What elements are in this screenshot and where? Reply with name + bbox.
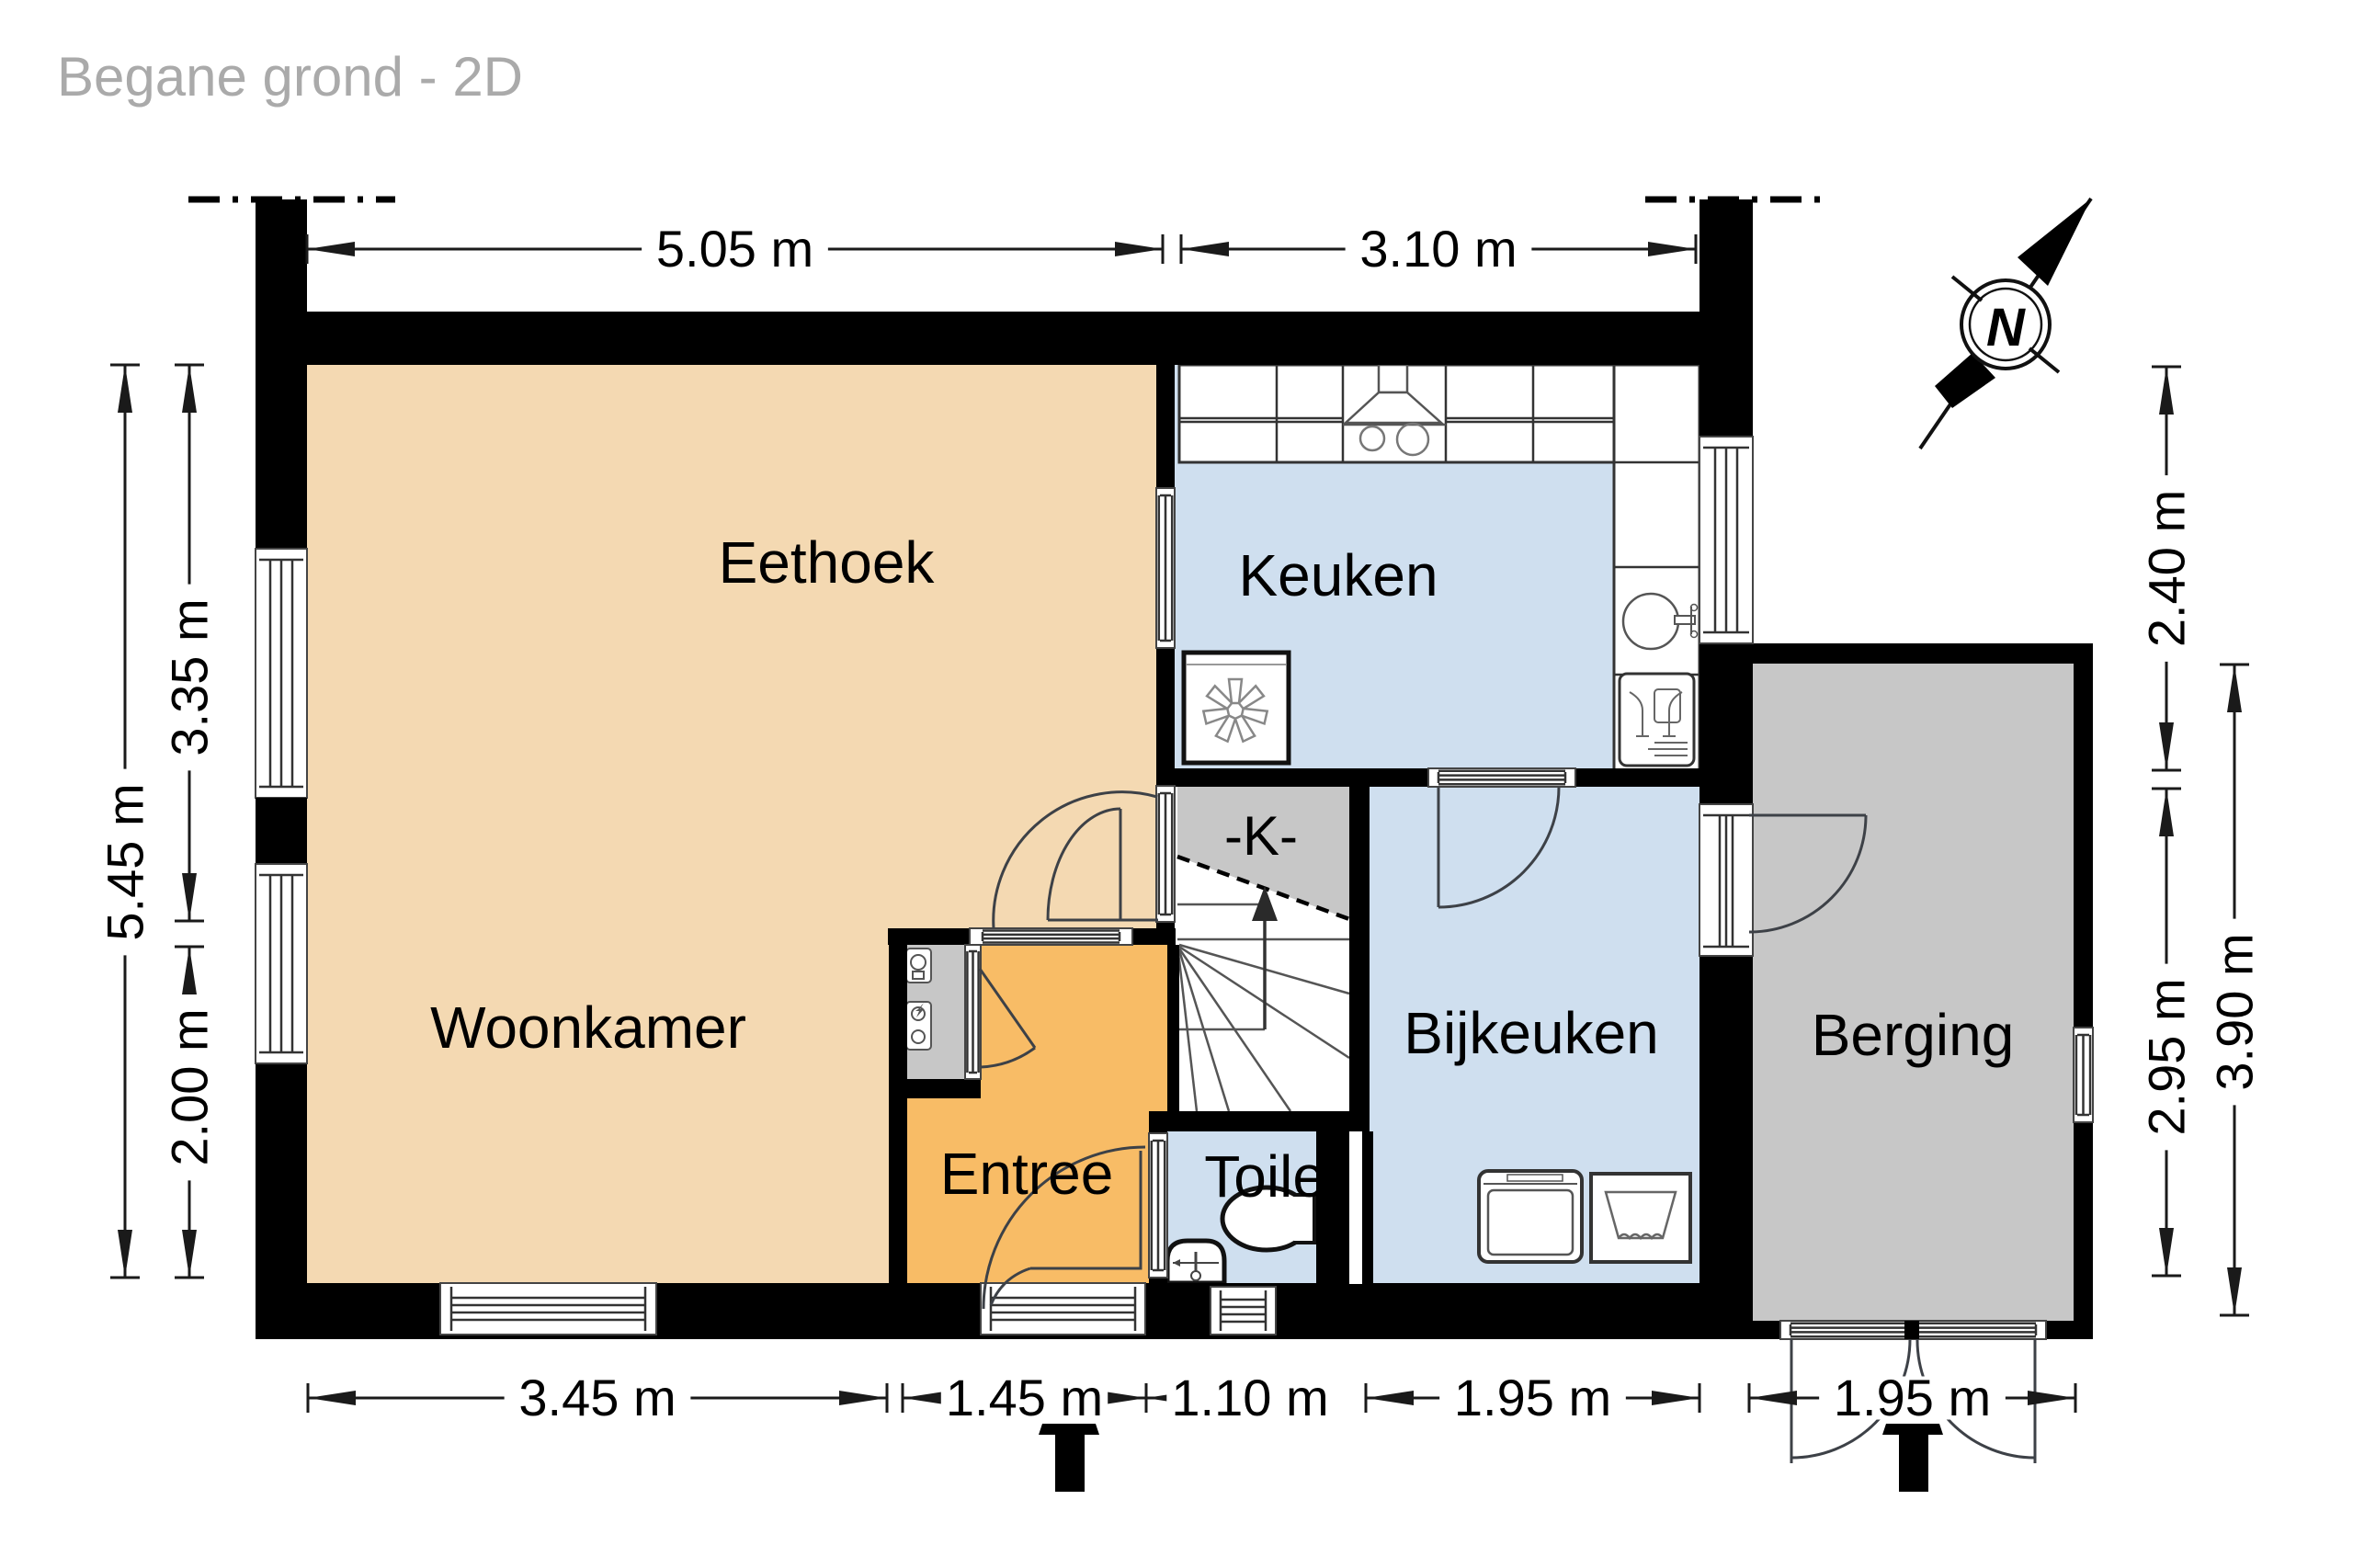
svg-text:3.10 m: 3.10 m xyxy=(1359,220,1517,278)
svg-text:3.45 m: 3.45 m xyxy=(518,1369,676,1426)
svg-text:1.95 m: 1.95 m xyxy=(1454,1369,1611,1426)
svg-text:3.35 m: 3.35 m xyxy=(161,598,219,756)
svg-text:2.95 m: 2.95 m xyxy=(2138,978,2196,1135)
svg-text:Entree: Entree xyxy=(940,1141,1114,1207)
svg-text:1.10 m: 1.10 m xyxy=(1171,1369,1328,1426)
svg-text:Begane grond - 2D: Begane grond - 2D xyxy=(57,46,523,108)
svg-text:-K-: -K- xyxy=(1224,805,1298,867)
svg-text:Toilet: Toilet xyxy=(1204,1143,1342,1210)
svg-text:Keuken: Keuken xyxy=(1238,542,1438,608)
svg-text:3.90 m: 3.90 m xyxy=(2206,933,2264,1090)
svg-text:5.45 m: 5.45 m xyxy=(97,783,154,940)
svg-text:1.45 m: 1.45 m xyxy=(946,1369,1103,1426)
svg-text:Eethoek: Eethoek xyxy=(719,529,936,596)
svg-text:5.05 m: 5.05 m xyxy=(656,220,813,278)
svg-text:1.95 m: 1.95 m xyxy=(1834,1369,1991,1426)
svg-text:Bijkeuken: Bijkeuken xyxy=(1404,1000,1659,1066)
svg-text:Woonkamer: Woonkamer xyxy=(430,994,746,1061)
svg-text:N: N xyxy=(1986,298,2026,358)
svg-text:2.00 m: 2.00 m xyxy=(161,1008,219,1165)
svg-text:2.40 m: 2.40 m xyxy=(2138,490,2196,647)
svg-text:Berging: Berging xyxy=(1812,1002,2015,1068)
